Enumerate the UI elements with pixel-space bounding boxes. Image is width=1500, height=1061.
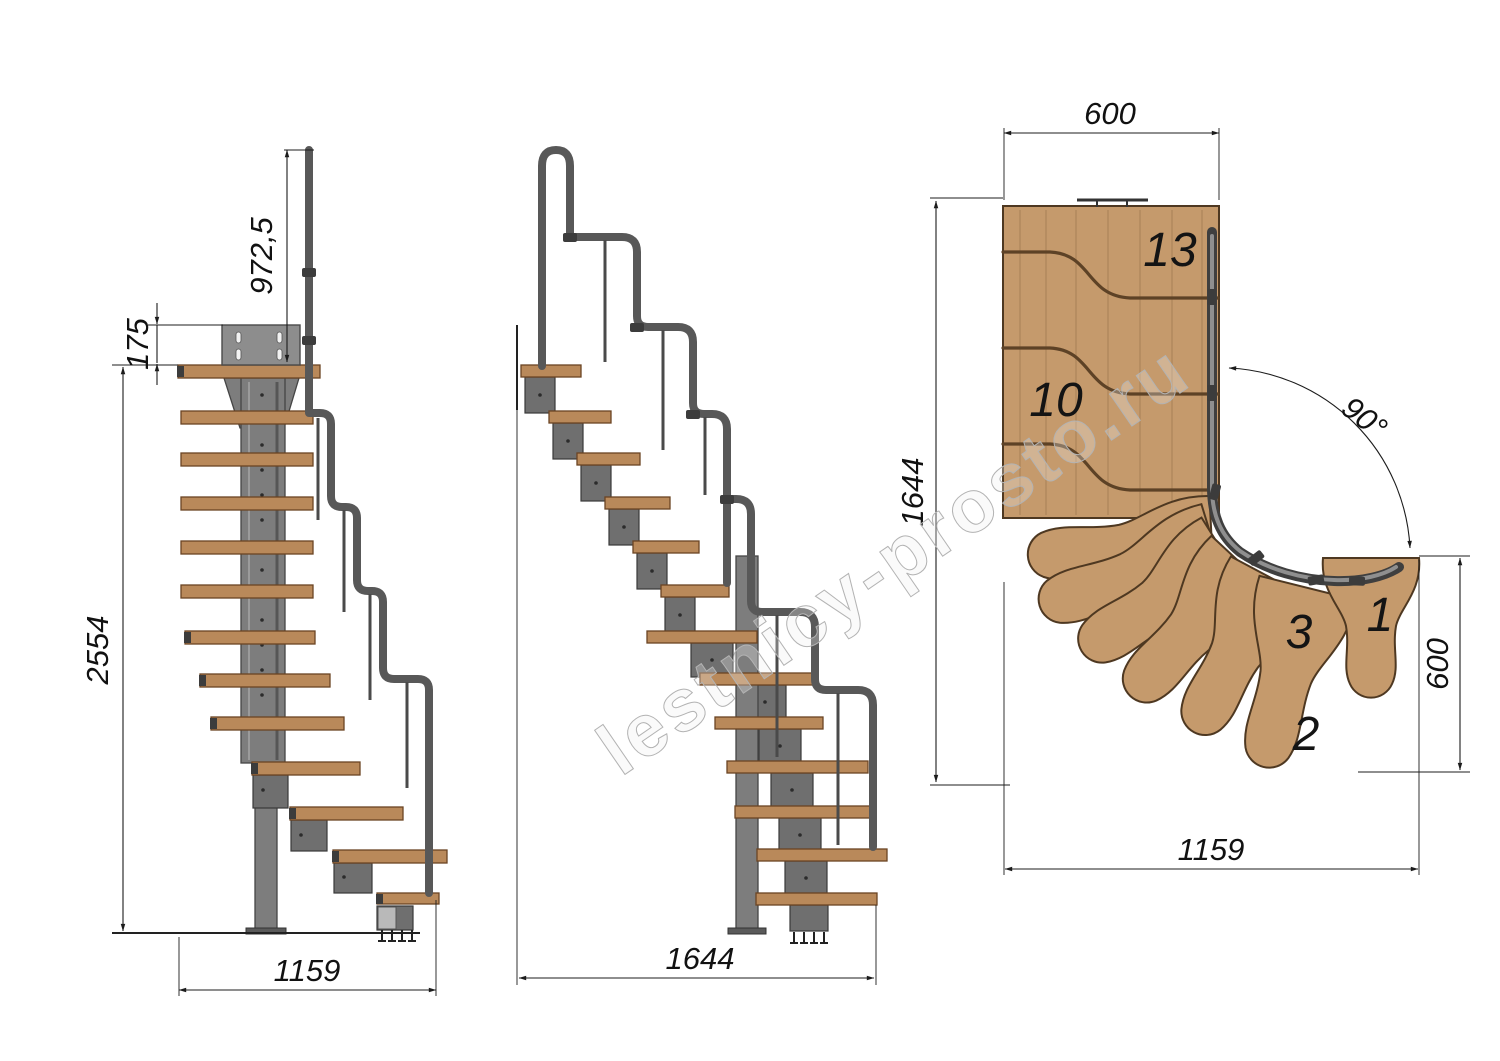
tread: [178, 365, 320, 378]
step-label-2: 2: [1292, 708, 1320, 761]
dim-rail-height: 972,5: [244, 216, 279, 294]
drawing-sheet: 972,5 175 2554 1159: [0, 0, 1500, 1061]
tread: [200, 674, 330, 687]
dim-base-width: 1159: [274, 953, 341, 988]
tread: [181, 585, 313, 598]
module: [334, 863, 372, 893]
step-label-1: 1: [1367, 589, 1394, 642]
module: [790, 905, 828, 931]
tread: [211, 717, 344, 730]
tread: [756, 893, 877, 905]
dim-turn-angle: 90°: [1335, 390, 1393, 446]
dim-total-height: 2554: [80, 616, 115, 686]
dim-entry-width: 600: [1420, 638, 1455, 690]
front-elevation-view: 972,5 175 2554 1159: [80, 150, 447, 996]
wall-mount-plate: [222, 325, 300, 365]
stair-technical-drawing: 972,5 175 2554 1159: [0, 0, 1500, 1061]
module: [291, 820, 327, 851]
tread: [577, 453, 640, 465]
tread: [549, 411, 611, 423]
dim-plate-height: 175: [120, 317, 155, 369]
front-handrail: [309, 150, 429, 893]
dim-total-run: 1644: [666, 941, 735, 976]
tread: [181, 497, 313, 510]
tread: [521, 365, 581, 377]
tread: [757, 849, 887, 861]
module: [253, 775, 288, 808]
tread: [661, 585, 729, 597]
tread: [735, 806, 872, 818]
dim-platform-width: 600: [1084, 96, 1136, 131]
tread: [181, 541, 313, 554]
step-label-13: 13: [1143, 224, 1197, 277]
anchor-bolts: [378, 930, 416, 942]
tread: [290, 807, 403, 820]
tread: [605, 497, 670, 509]
tread: [181, 411, 313, 424]
step-label-3: 3: [1286, 606, 1313, 659]
tread: [633, 541, 699, 553]
tread: [181, 453, 313, 466]
dim-total-width: 1159: [1178, 832, 1245, 867]
tread: [252, 762, 360, 775]
tread: [727, 761, 868, 773]
tread: [185, 631, 315, 644]
